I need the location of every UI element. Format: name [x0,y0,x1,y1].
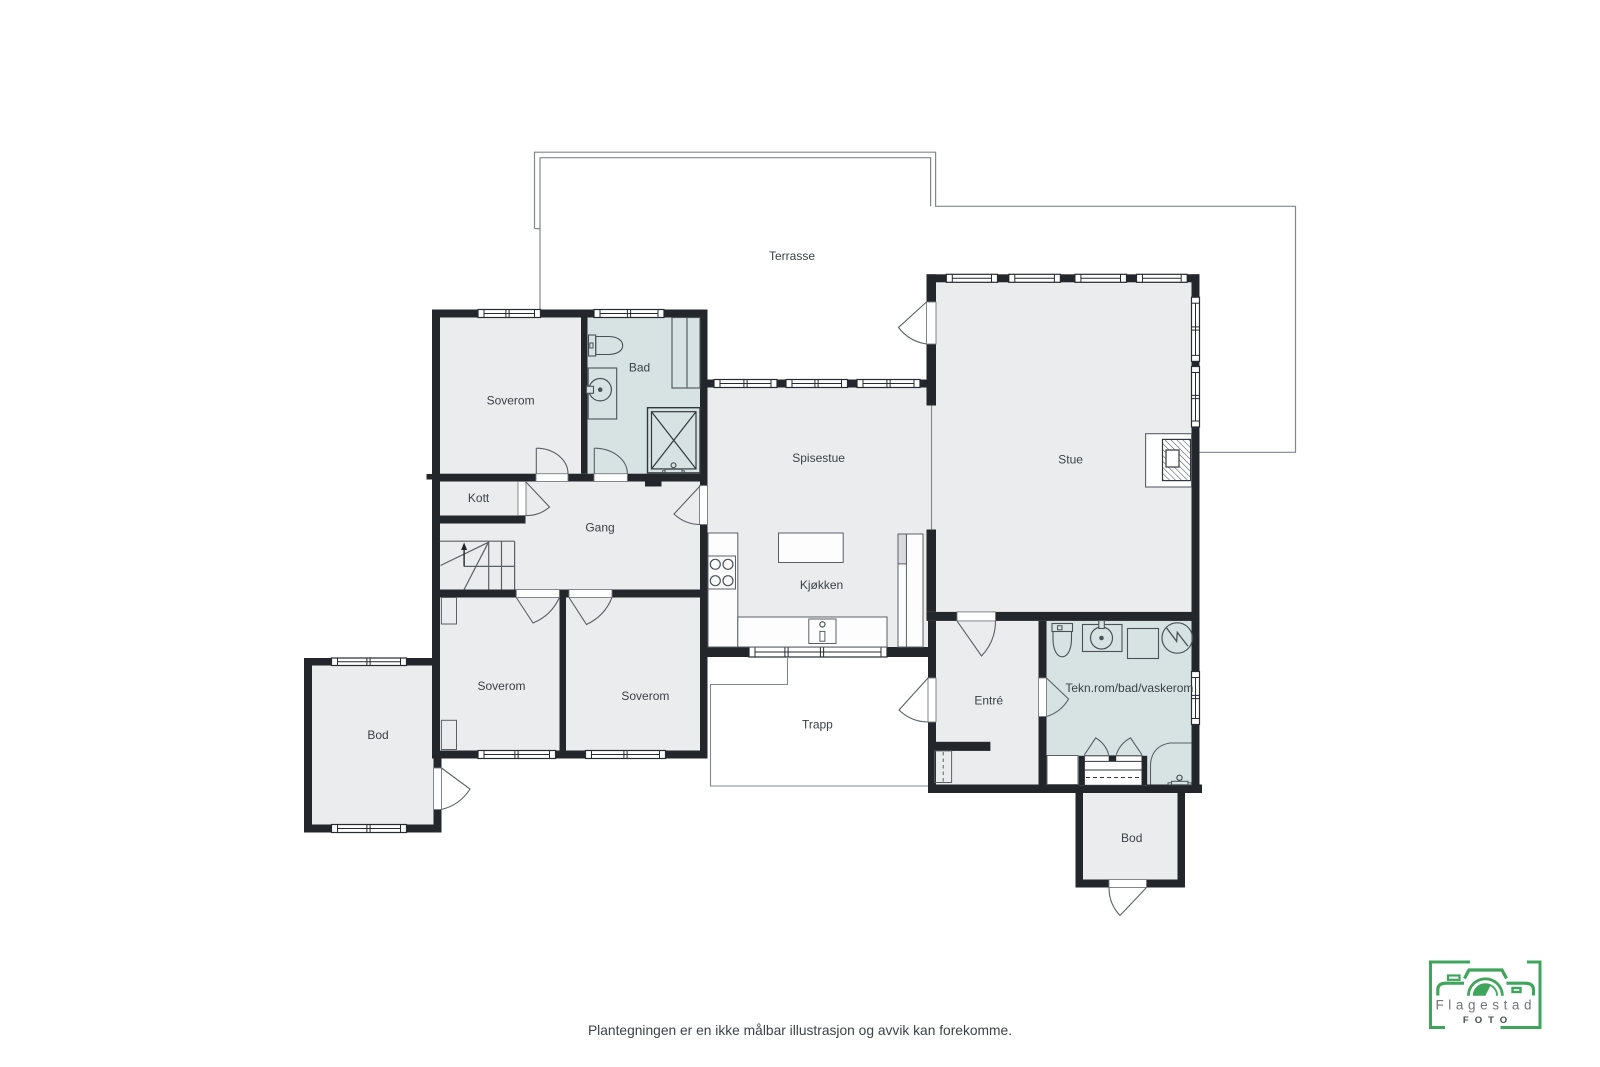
svg-text:Stue: Stue [1058,453,1083,467]
svg-text:Bod: Bod [367,728,388,742]
svg-text:FOTO: FOTO [1463,1015,1513,1026]
svg-text:Gang: Gang [585,521,614,535]
svg-text:Bod: Bod [1121,831,1142,845]
svg-text:Soverom: Soverom [487,393,535,407]
svg-text:Soverom: Soverom [621,689,669,703]
svg-text:Bad: Bad [629,361,650,375]
svg-text:Kjøkken: Kjøkken [800,578,843,592]
svg-text:Terrasse: Terrasse [769,249,815,263]
svg-text:Trapp: Trapp [802,718,833,732]
svg-text:Tekn.rom/bad/vaskerom: Tekn.rom/bad/vaskerom [1065,681,1193,695]
svg-text:Kott: Kott [468,491,490,505]
svg-text:Entré: Entré [974,694,1003,708]
svg-text:Soverom: Soverom [477,679,525,693]
svg-text:Plantegningen er en ikke målba: Plantegningen er en ikke målbar illustra… [588,1023,1012,1038]
svg-text:Spisestue: Spisestue [792,451,845,465]
svg-text:Flagestad: Flagestad [1435,998,1536,1013]
